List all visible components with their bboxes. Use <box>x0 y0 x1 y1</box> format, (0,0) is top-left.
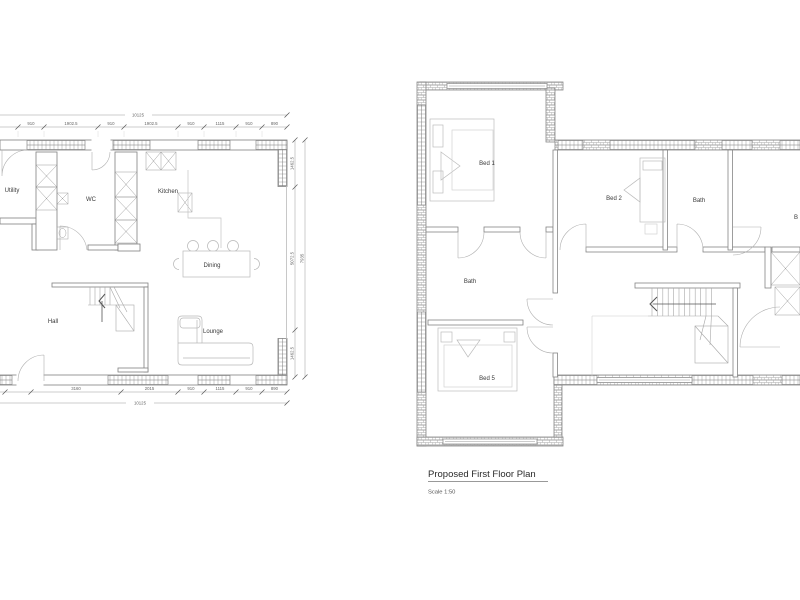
dim-bot-seg-2: 910 <box>187 386 195 391</box>
room-label-bath-mid: Bath <box>464 279 476 285</box>
ff-bed2-furniture <box>624 158 665 234</box>
dim-bot-seg-4: 910 <box>245 386 253 391</box>
ff-exterior-walls <box>417 82 800 446</box>
gf-kitchen-counter <box>188 170 221 248</box>
dim-right-seg-2: 1462.5 <box>290 346 295 360</box>
dim-right-seg-0: 1462.5 <box>290 156 295 170</box>
room-label-bed1: Bed 1 <box>479 161 495 167</box>
room-label-wc: WC <box>86 197 97 203</box>
plan-scale: Scale 1:50 <box>428 490 455 496</box>
room-label-dining: Dining <box>203 263 220 269</box>
ff-bed5-furniture <box>438 328 517 391</box>
room-label-bed-right-partial: B <box>794 215 798 221</box>
ff-bed1-furniture <box>430 119 494 201</box>
dim-top-seg-1: 1902.5 <box>64 121 78 126</box>
dim-top-seg-3: 1902.5 <box>144 121 158 126</box>
drawing-sheet: Utility WC Kitchen Dining Hall Lounge 10… <box>0 0 800 600</box>
ff-interior-walls <box>426 150 800 377</box>
ff-cupboard-hatches <box>771 252 800 315</box>
gf-dimensions-right: 1462.5 5072.5 1462.5 7935 <box>290 138 308 380</box>
gf-wc-sink <box>57 193 68 204</box>
dim-bot-total: 10125 <box>134 401 147 406</box>
dim-top-seg-5: 1115 <box>216 121 226 126</box>
dim-top-seg-6: 910 <box>245 121 253 126</box>
ff-windows <box>418 84 800 445</box>
plan-title: Proposed First Floor Plan <box>428 469 536 480</box>
dim-bot-seg-0: 3160 <box>71 386 81 391</box>
room-label-hall: Hall <box>48 319 58 325</box>
room-label-lounge: Lounge <box>203 329 224 335</box>
dim-bot-seg-3: 1115 <box>216 386 226 391</box>
gf-kitchen-sink-unit <box>146 152 176 170</box>
gf-rear-door-gap <box>17 374 44 386</box>
gf-dimensions-top: 10125 910 1902.5 910 1902.5 910 1115 910… <box>0 113 290 138</box>
room-label-bath-top: Bath <box>693 198 705 204</box>
ff-title-block: Proposed First Floor Plan Scale 1:50 <box>428 469 548 496</box>
room-label-bed2: Bed 2 <box>606 196 622 202</box>
gf-dining-table <box>174 241 260 278</box>
gf-front-door-gap <box>92 139 111 151</box>
ff-stairs <box>592 288 728 377</box>
floor-plans-canvas: Utility WC Kitchen Dining Hall Lounge 10… <box>0 0 800 600</box>
dim-top-seg-7: 890 <box>271 121 279 126</box>
gf-kitchen-tall-unit <box>178 193 192 212</box>
room-label-kitchen: Kitchen <box>158 189 178 195</box>
gf-stairs <box>88 287 134 331</box>
room-label-bed5: Bed 5 <box>479 376 495 382</box>
first-floor-plan: Bed 1 Bed 2 Bath Bath Bed 5 B Proposed F… <box>417 82 800 496</box>
dim-right-seg-1: 5072.5 <box>290 251 295 265</box>
gf-sofa <box>178 316 253 365</box>
room-label-utility: Utility <box>5 188 20 194</box>
gf-dimensions-bottom: 3160 2015 910 1115 910 890 10125 <box>0 386 290 406</box>
dim-top-seg-4: 910 <box>187 121 195 126</box>
gf-wc-toilet <box>57 227 68 239</box>
dim-top-total: 10125 <box>132 113 145 118</box>
dim-bot-seg-1: 2015 <box>145 386 155 391</box>
dim-top-seg-0: 910 <box>27 121 35 126</box>
dim-right-total: 7935 <box>300 253 305 263</box>
dim-bot-seg-5: 890 <box>271 386 279 391</box>
dim-top-seg-2: 910 <box>107 121 115 126</box>
ground-floor-plan: Utility WC Kitchen Dining Hall Lounge 10… <box>0 113 308 406</box>
